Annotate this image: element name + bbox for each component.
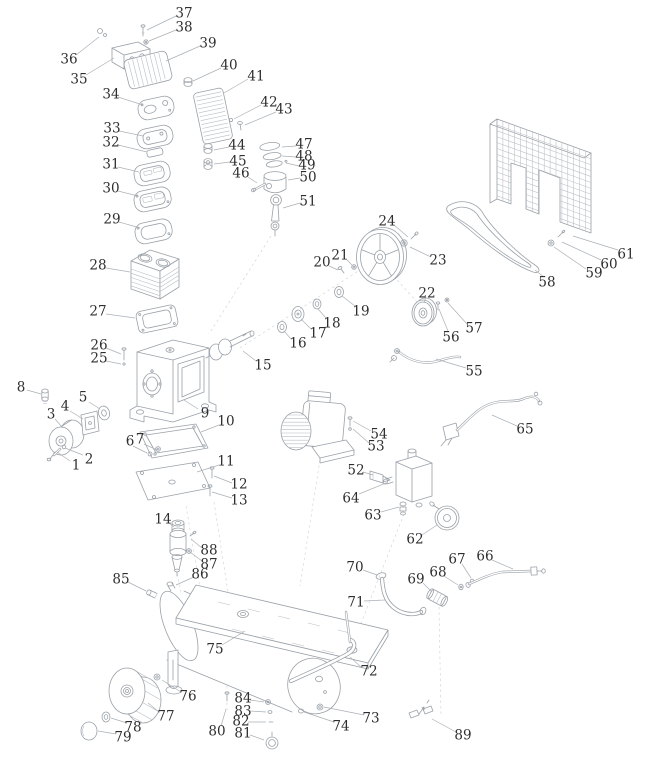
leader-line-55 [436,359,466,368]
leader-line-34 [118,97,143,105]
leader-line-43 [245,112,276,125]
part-label-71: 71 [347,595,364,611]
motor [280,390,354,463]
part-label-66: 66 [476,549,493,565]
part-label-46: 46 [232,166,249,182]
part-label-33: 33 [103,121,120,137]
part-label-30: 30 [102,181,119,197]
leader-line-29 [119,222,140,228]
part-label-80: 80 [208,724,225,740]
cylinder-gasket-29 [133,217,174,245]
regulator-14 [170,520,186,576]
motor-bolts-53-54 [348,417,352,431]
bolt-42 [229,118,232,121]
part-label-43: 43 [275,102,292,118]
leader-line-44 [214,147,229,150]
part-label-69: 69 [407,572,424,588]
wheel-76-77 [109,668,161,723]
cylinder-head-41 [193,87,233,144]
valve-plate-30 [132,185,173,213]
part-label-89: 89 [454,728,471,744]
leader-line-40 [193,68,221,81]
part-label-38: 38 [175,20,192,36]
part-label-70: 70 [346,560,363,576]
leader-line-50 [288,178,300,180]
bolt-37 [141,25,145,36]
drain-stack-81-84 [266,700,279,750]
leader-line-5 [89,402,100,409]
washer-38 [144,40,148,44]
part-label-8: 8 [17,380,26,396]
exploded-parts-diagram: 1234567891011121314151617181920212223242… [0,0,656,768]
leader-line-30 [118,191,138,196]
seal-18 [313,299,321,309]
leader-line-3 [55,419,63,428]
part-label-15: 15 [254,358,271,374]
check-valve-69 [425,588,449,608]
fitting-68 [459,584,463,590]
exploded-parts-diagram-page: 1234567891011121314151617181920212223242… [0,0,656,768]
bearing-17 [292,307,304,322]
part-label-88: 88 [200,543,217,559]
spacer-32 [146,147,163,157]
part-label-11: 11 [217,454,234,470]
part-label-54: 54 [370,427,387,443]
part-label-35: 35 [70,72,87,88]
leader-line-27 [106,314,135,318]
part-label-87: 87 [200,557,217,573]
leader-line-25 [106,361,121,364]
part-label-26: 26 [90,338,107,354]
leader-line-42 [234,105,261,119]
belt-58 [447,202,539,273]
part-label-77: 77 [157,709,174,725]
leader-line-83 [250,711,266,712]
part-label-76: 76 [179,689,196,705]
part-label-21: 21 [331,248,348,264]
part-label-84: 84 [234,691,251,707]
leader-line-8 [27,390,41,394]
leader-line-36 [76,37,99,55]
bolts-56-57 [436,298,449,310]
part-label-74: 74 [332,719,349,735]
part-label-12: 12 [230,477,247,493]
part-label-18: 18 [323,316,340,332]
part-label-29: 29 [103,212,120,228]
gasket-10 [140,424,208,458]
unloader-tube-55 [390,349,460,363]
crankcase-gasket-27 [135,304,179,334]
leader-line-54 [353,421,371,431]
part-label-51: 51 [299,194,316,210]
part-label-58: 58 [538,275,555,291]
part-label-27: 27 [89,304,106,320]
guard-bolts-59-60-61 [548,230,565,246]
bolt-8 [42,389,48,404]
fitting-44 [204,144,212,154]
leader-line-47 [282,146,296,147]
part-label-64: 64 [342,491,359,507]
pipe-66 [465,567,545,588]
part-label-39: 39 [199,36,216,52]
valve-plate-33 [135,123,174,150]
belt-guard [490,115,591,238]
leader-line-26 [106,348,121,354]
leader-line-61 [573,236,618,250]
leader-line-81 [250,735,264,740]
part-label-40: 40 [220,58,237,74]
part-label-14: 14 [154,512,171,528]
part-label-52: 52 [347,463,364,479]
part-label-72: 72 [360,664,377,680]
part-label-6: 6 [126,434,135,450]
part-label-60: 60 [600,257,617,273]
crankshaft-15 [206,331,254,360]
piston-pin-46 [251,184,265,192]
leader-line-73 [324,707,364,715]
bolt-43 [238,122,243,131]
leader-line-48 [282,156,296,157]
part-label-67: 67 [448,552,465,568]
part-label-36: 36 [60,52,77,68]
leader-line-60 [562,242,601,260]
leader-line-56 [439,309,448,331]
part-label-75: 75 [206,642,223,658]
part-label-4: 4 [61,399,70,415]
leader-line-51 [283,203,300,208]
leader-line-89 [432,719,456,732]
piston-rings-47-48-49 [259,141,287,169]
part-label-3: 3 [47,407,56,423]
ring-78 [102,712,110,722]
fitting-45 [204,159,212,170]
valve-plate-31 [132,159,172,187]
leader-line-45 [214,162,230,164]
part-label-31: 31 [102,157,119,173]
leader-line-13 [212,492,232,498]
part-label-34: 34 [102,87,119,103]
leader-line-65 [492,415,517,426]
ring-5 [97,405,111,421]
leader-line-84 [250,700,264,702]
washer-21 [352,265,357,270]
leader-line-10 [201,425,219,432]
part-label-79: 79 [114,730,131,746]
part-label-16: 16 [289,336,306,352]
leader-line-24 [394,225,408,237]
connecting-rod-51 [271,195,282,236]
bolt-85 [146,589,157,598]
part-label-63: 63 [364,508,381,524]
part-label-73: 73 [362,711,379,727]
part-label-20: 20 [313,255,330,271]
leader-line-64 [359,483,386,494]
leader-line-70 [363,570,377,575]
leader-line-39 [166,46,200,61]
piston-50 [264,172,286,193]
fitting-52 [370,471,390,483]
part-label-13: 13 [230,493,247,509]
air-filter-housing-1-2-3 [47,420,84,461]
part-label-65: 65 [516,422,533,438]
leader-line-37 [147,16,176,30]
bolt-12 [210,467,214,478]
bolt-80 [225,686,229,710]
leader-line-7 [144,444,157,450]
leader-line-71 [364,600,385,601]
part-label-1: 1 [72,458,81,474]
bolt-20 [338,266,344,273]
part-label-19: 19 [352,304,369,320]
part-label-24: 24 [378,214,395,230]
part-label-62: 62 [406,532,423,548]
power-cord-65 [441,392,542,446]
leader-line-38 [149,30,176,41]
part-label-57: 57 [465,321,482,337]
spacer-40 [184,78,192,87]
part-label-9: 9 [201,406,210,422]
flywheel [357,228,407,285]
part-label-55: 55 [465,364,482,380]
plate-4 [81,411,99,435]
leader-line-66 [492,560,513,569]
part-label-50: 50 [299,170,316,186]
leader-line-35 [86,58,114,75]
part-label-44: 44 [228,138,245,154]
part-label-32: 32 [102,135,119,151]
leader-line-62 [422,525,437,535]
leader-line-63 [381,507,399,512]
part-label-68: 68 [429,565,446,581]
part-label-2: 2 [85,452,94,468]
part-label-28: 28 [89,258,106,274]
bolts-25-26 [122,348,126,365]
part-label-5: 5 [79,390,88,406]
gauge-62 [429,501,459,530]
leader-line-23 [410,247,431,257]
clamp-36 [98,29,107,37]
cylinder-block-28 [131,250,179,299]
leader-line-12 [214,476,232,483]
part-label-7: 7 [136,432,145,448]
part-label-85: 85 [112,572,129,588]
base-plate-11 [136,462,210,500]
pressure-switch [396,449,432,515]
part-label-61: 61 [617,247,634,263]
bolt-13 [208,485,212,496]
head-gasket-34 [136,94,175,121]
leader-line-41 [224,79,248,93]
leader-line-57 [448,303,467,324]
part-label-22: 22 [418,286,435,302]
hubcap-79 [81,722,97,740]
fitting-86 [167,582,175,591]
part-label-41: 41 [247,69,264,85]
part-label-10: 10 [217,414,234,430]
leader-line-59 [554,247,586,269]
bolt-24 [411,231,419,239]
fittings-89 [409,700,433,718]
leader-line-28 [106,268,130,272]
part-label-56: 56 [442,330,459,346]
leader-line-79 [98,731,116,734]
part-label-23: 23 [429,253,446,269]
washer-16 [278,322,287,333]
leader-line-85 [128,582,146,591]
